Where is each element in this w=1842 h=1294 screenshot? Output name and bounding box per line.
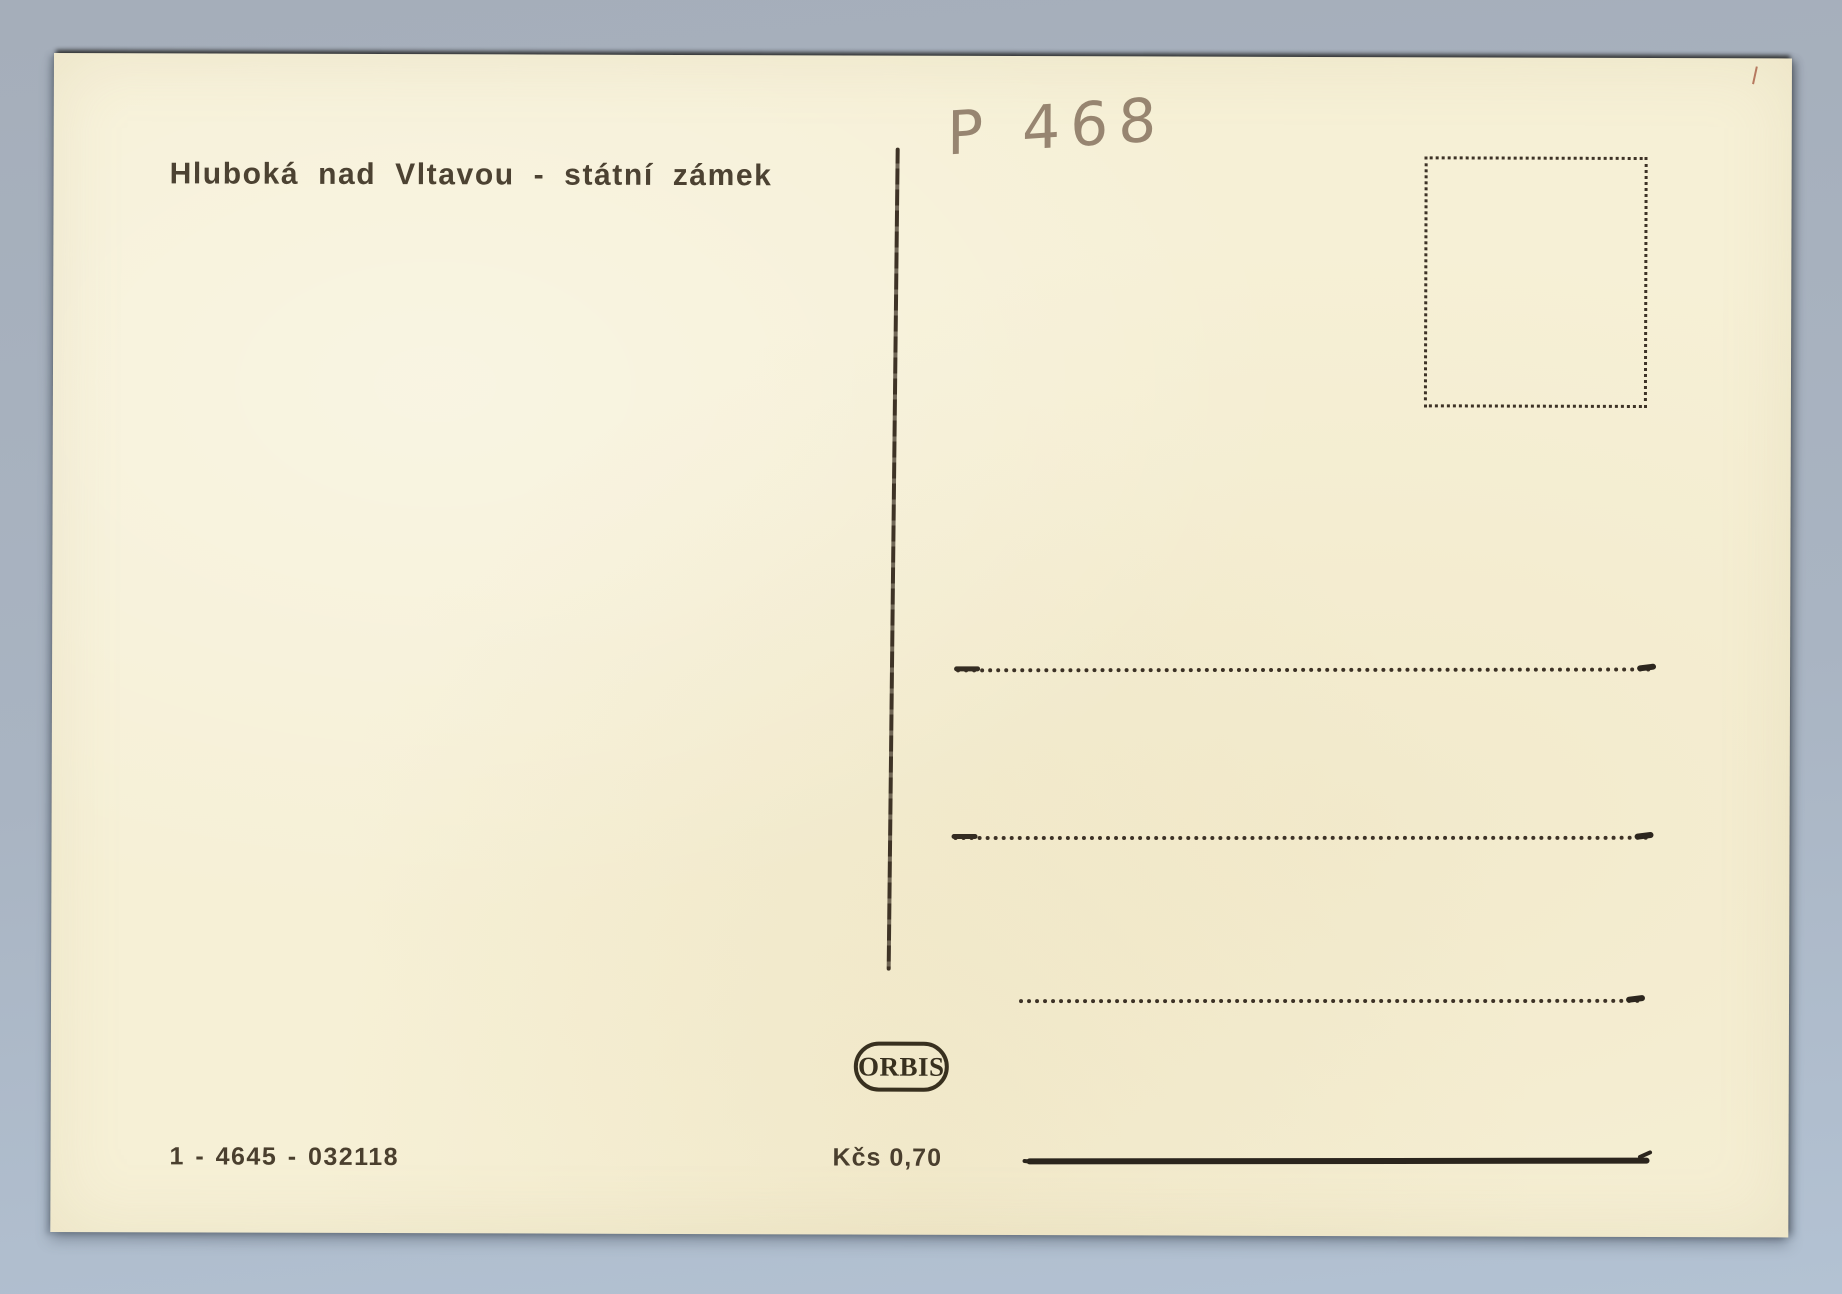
orbis-logo-text: ORBIS: [858, 1051, 945, 1083]
postcard-caption: Hluboká nad Vltavou - státní zámek: [170, 157, 773, 193]
handwritten-note: P 468: [947, 85, 1167, 170]
address-line-2: [954, 836, 1649, 840]
scratch-mark: [1752, 66, 1758, 84]
address-line-3: [1019, 999, 1640, 1003]
photo-background: Hluboká nad Vltavou - státní zámek P 468…: [0, 0, 1842, 1294]
orbis-publisher-logo: ORBIS: [854, 1042, 949, 1092]
print-number: 1 - 4645 - 032118: [169, 1142, 399, 1172]
ink-blob: [1634, 832, 1654, 840]
address-line-1: [956, 668, 1651, 673]
divider-line: [887, 148, 900, 971]
ink-blob: [1637, 663, 1657, 671]
postcard-back: Hluboká nad Vltavou - státní zámek P 468…: [50, 53, 1792, 1237]
price-label: Kčs 0,70: [832, 1143, 942, 1172]
ink-blob: [1637, 1150, 1652, 1160]
ink-blob: [1626, 995, 1646, 1003]
ink-blob: [954, 666, 980, 671]
ink-blob: [952, 834, 978, 839]
stamp-box: [1424, 156, 1648, 408]
sender-line: [1027, 1158, 1650, 1165]
ink-blob: [1022, 1159, 1034, 1164]
